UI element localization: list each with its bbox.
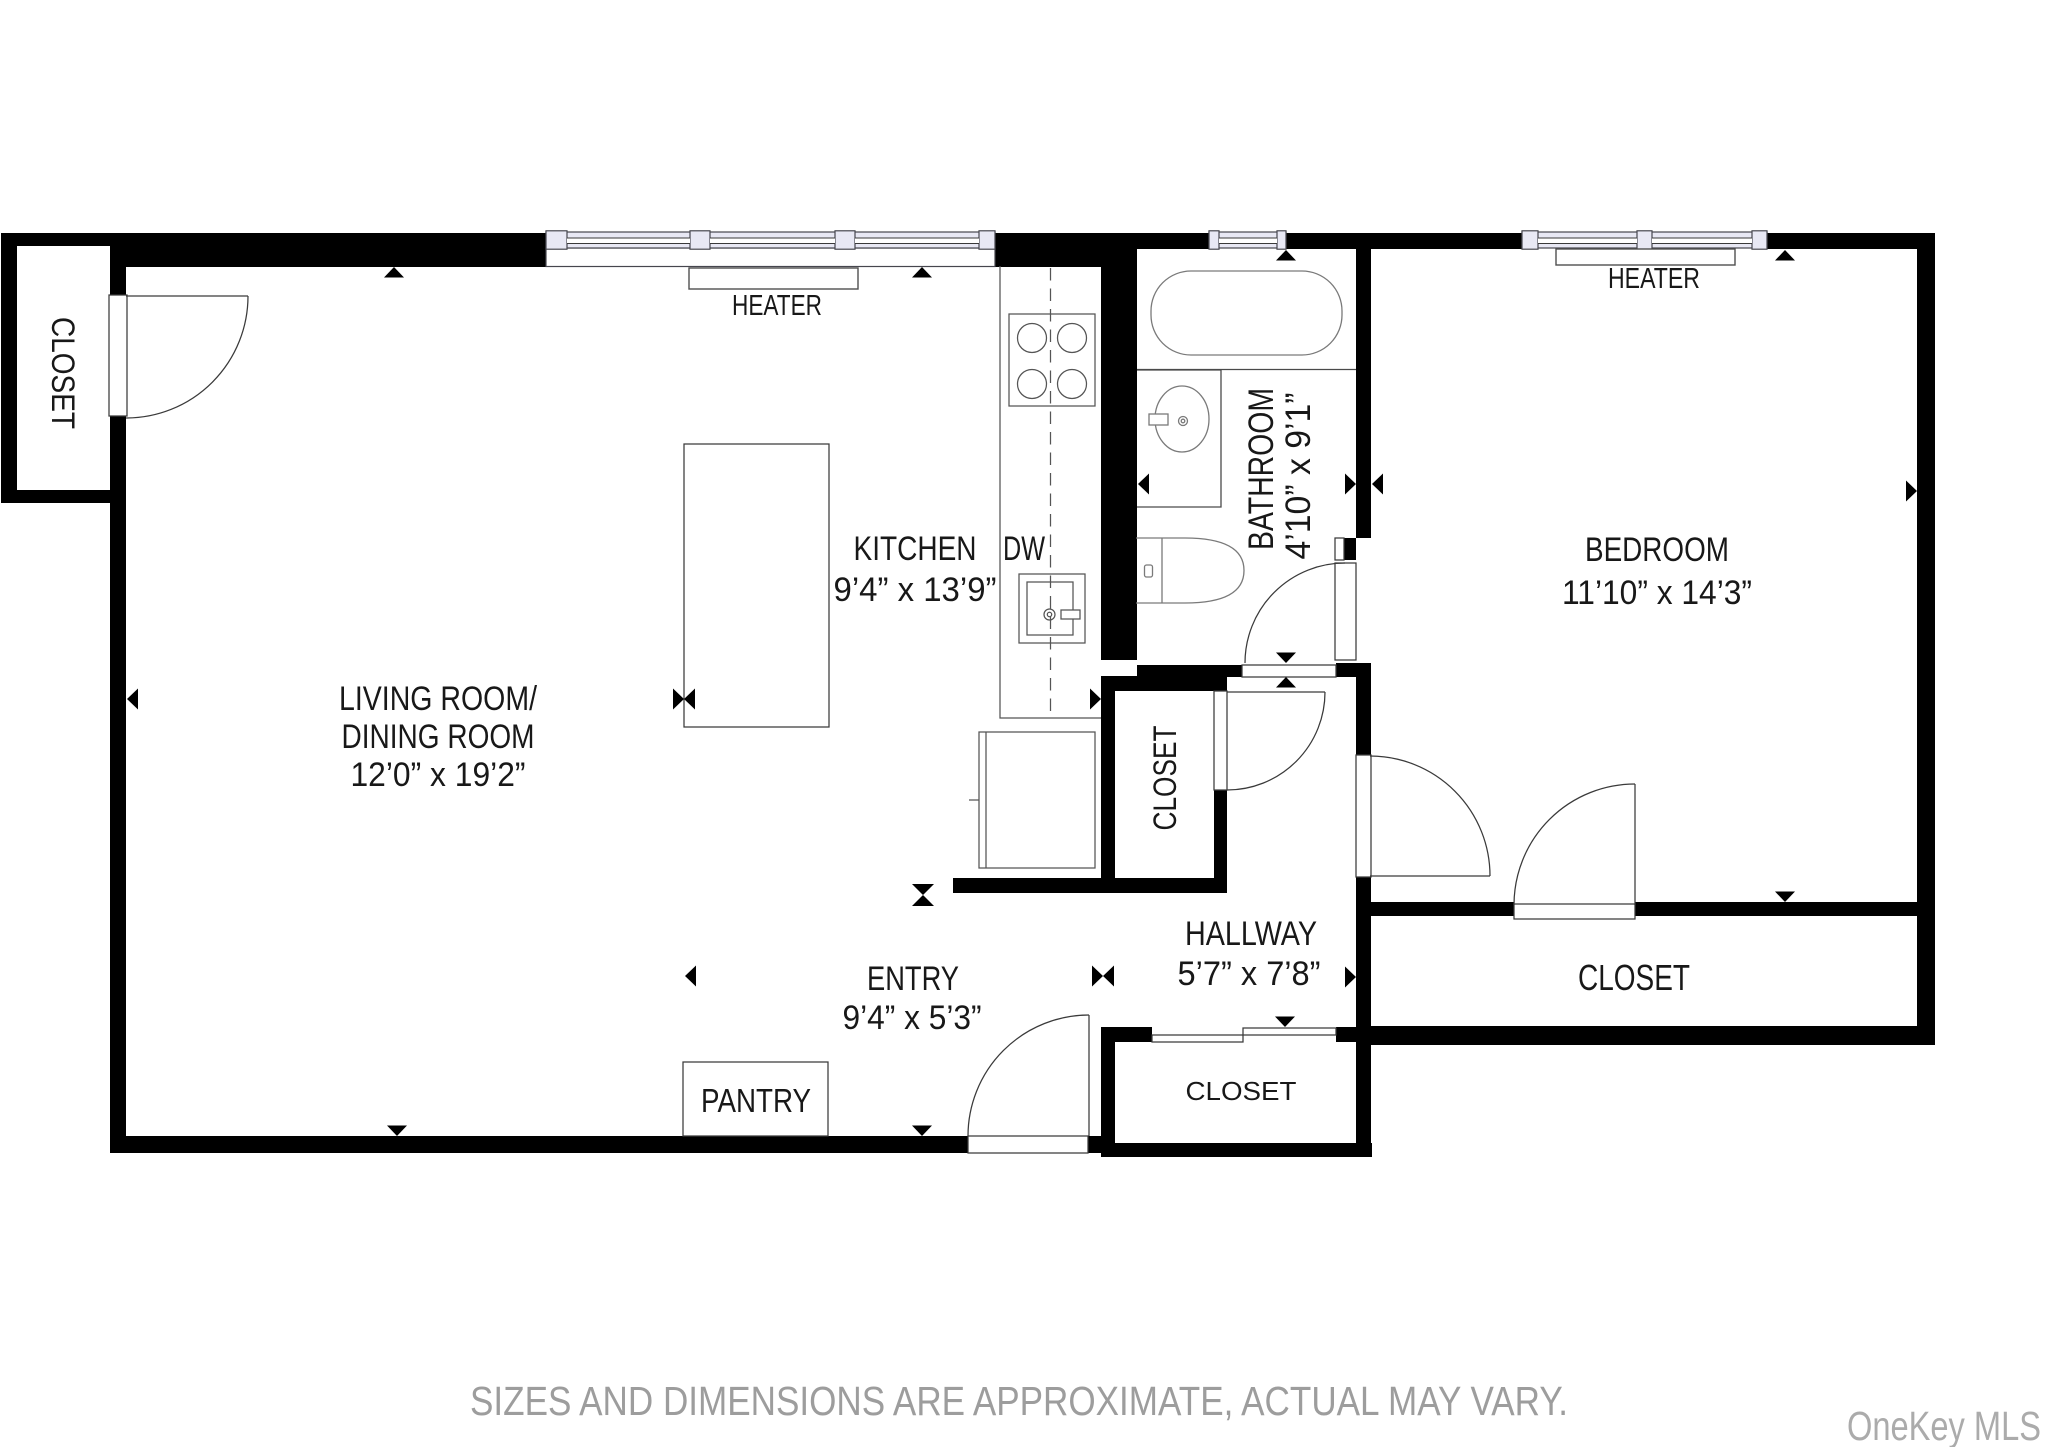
svg-text:CLOSET: CLOSET bbox=[1578, 957, 1690, 998]
svg-text:BEDROOM: BEDROOM bbox=[1585, 531, 1729, 569]
svg-text:9’4” x 5’3”: 9’4” x 5’3” bbox=[843, 999, 982, 1037]
svg-text:HEATER: HEATER bbox=[732, 290, 822, 322]
svg-text:CLOSET: CLOSET bbox=[45, 317, 81, 429]
svg-text:HALLWAY: HALLWAY bbox=[1185, 915, 1317, 953]
svg-text:CLOSET: CLOSET bbox=[1186, 1076, 1297, 1106]
svg-text:9’4” x 13’9”: 9’4” x 13’9” bbox=[834, 571, 997, 609]
svg-text:DINING ROOM: DINING ROOM bbox=[342, 718, 535, 756]
svg-text:PANTRY: PANTRY bbox=[701, 1082, 811, 1119]
svg-text:OneKey MLS: OneKey MLS bbox=[1847, 1403, 2041, 1447]
svg-text:HEATER: HEATER bbox=[1608, 263, 1700, 295]
svg-text:LIVING ROOM/: LIVING ROOM/ bbox=[339, 680, 537, 718]
svg-text:5’7” x 7’8”: 5’7” x 7’8” bbox=[1178, 955, 1321, 993]
svg-text:12’0” x 19’2”: 12’0” x 19’2” bbox=[351, 756, 526, 794]
svg-text:11’10” x 14’3”: 11’10” x 14’3” bbox=[1562, 574, 1752, 612]
svg-text:SIZES AND DIMENSIONS ARE APPRO: SIZES AND DIMENSIONS ARE APPROXIMATE, AC… bbox=[470, 1378, 1568, 1424]
svg-text:ENTRY: ENTRY bbox=[867, 960, 959, 998]
svg-text:BATHROOM: BATHROOM bbox=[1242, 388, 1281, 550]
svg-text:CLOSET: CLOSET bbox=[1147, 726, 1183, 831]
svg-text:KITCHEN: KITCHEN bbox=[854, 530, 977, 568]
svg-text:DW: DW bbox=[1003, 530, 1045, 568]
svg-text:4’10” x 9’1”: 4’10” x 9’1” bbox=[1279, 393, 1318, 560]
